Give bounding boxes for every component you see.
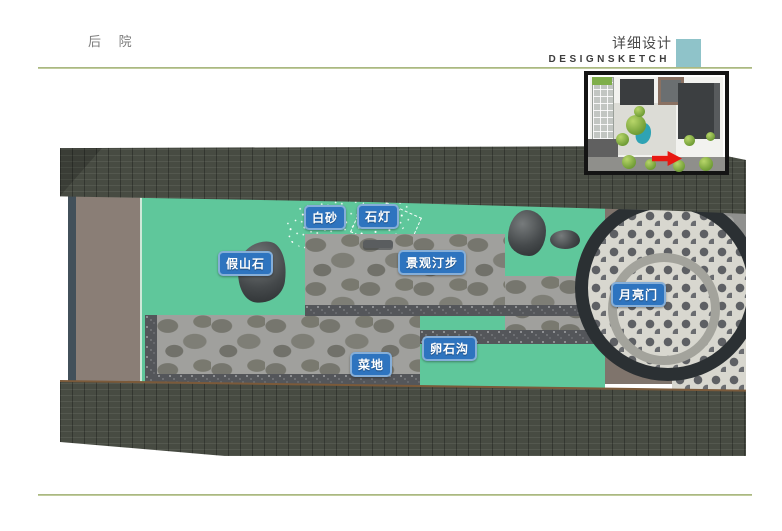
label-rockery-stone: 假山石 — [218, 251, 273, 276]
tree-icon — [626, 115, 646, 135]
inset-roof-main — [678, 83, 720, 139]
slide-title-en: DESIGNSKETCH — [549, 54, 670, 65]
accent-square — [676, 39, 701, 67]
inset-hedge — [592, 77, 612, 85]
tree-icon — [699, 157, 713, 171]
slide-canvas: 后 院 详细设计 DESIGNSKETCH 白砂 石灯 假山石 景观 — [0, 0, 782, 531]
left-wall — [76, 192, 142, 384]
bottom-roof — [60, 382, 746, 456]
tree-icon — [684, 135, 695, 146]
bottom-rule — [38, 494, 752, 496]
label-pebble-ditch: 卵石沟 — [422, 336, 477, 361]
tree-icon — [616, 133, 629, 146]
label-stepping-stones: 景观汀步 — [398, 250, 466, 275]
site-overview-inset — [584, 71, 729, 175]
label-white-sand: 白砂 — [304, 205, 346, 230]
inset-roof-small — [620, 79, 654, 105]
section-title: 后 院 — [88, 31, 139, 50]
slide-title-cn: 详细设计 — [612, 33, 672, 53]
rockery-stone — [550, 230, 580, 249]
stone-lantern-object — [363, 240, 393, 248]
moon-gate-arch — [608, 253, 720, 365]
label-vegetable-plot: 菜地 — [350, 352, 392, 377]
tree-icon — [634, 106, 645, 117]
top-rule — [38, 67, 752, 69]
pebble-ditch-strip — [145, 315, 157, 386]
rockery-stone — [508, 210, 546, 256]
tree-icon — [622, 155, 636, 169]
tree-icon — [706, 132, 715, 141]
label-stone-lantern: 石灯 — [357, 204, 399, 229]
label-moon-gate: 月亮门 — [611, 282, 666, 307]
pebble-ditch-strip — [305, 305, 605, 316]
